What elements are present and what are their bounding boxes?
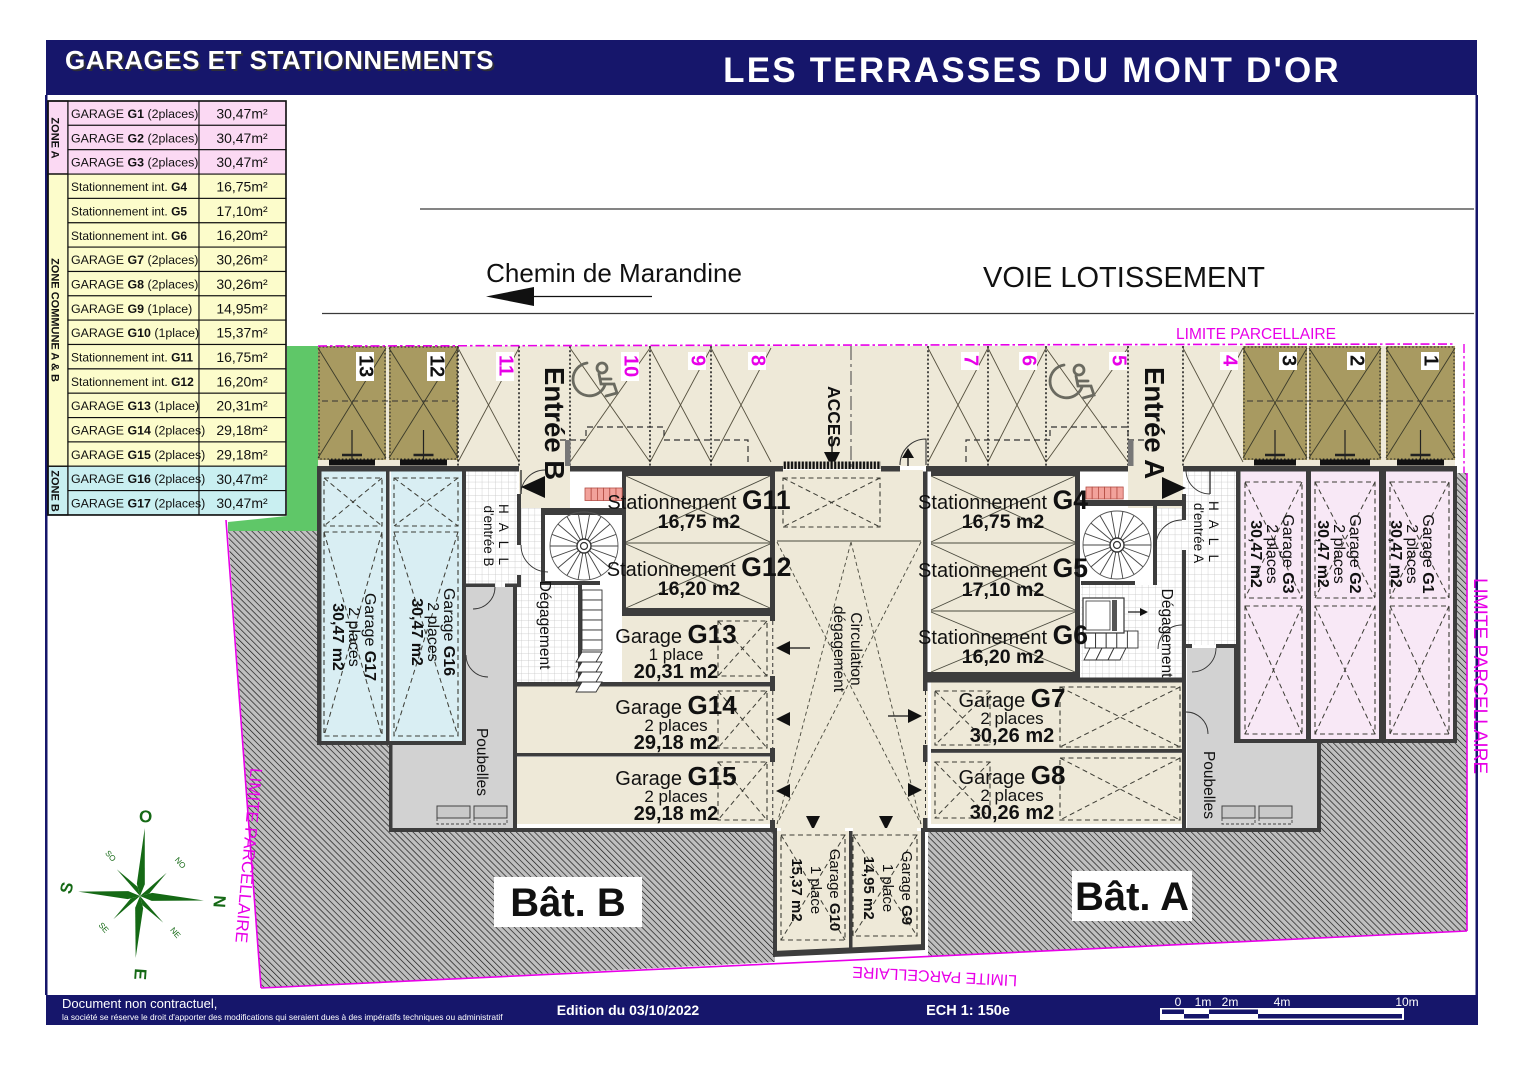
svg-text:Poubelles: Poubelles — [1200, 751, 1217, 819]
svg-text:ZONE A: ZONE A — [49, 117, 61, 158]
svg-text:0: 0 — [1175, 995, 1182, 1009]
svg-text:30,26m²: 30,26m² — [216, 276, 268, 292]
svg-text:GARAGE G10 (1place): GARAGE G10 (1place) — [71, 326, 199, 340]
svg-text:GARAGE G8 (2places): GARAGE G8 (2places) — [71, 278, 198, 292]
svg-text:20,31m²: 20,31m² — [216, 398, 268, 414]
svg-text:Stationnement int. G5: Stationnement int. G5 — [71, 204, 187, 218]
svg-text:13: 13 — [355, 355, 377, 377]
svg-text:30,47m²: 30,47m² — [216, 130, 268, 146]
svg-text:H A L Ld'entrée A: H A L Ld'entrée A — [1191, 501, 1221, 565]
svg-text:30,47m²: 30,47m² — [216, 495, 268, 511]
svg-text:Bât. A: Bât. A — [1075, 875, 1189, 919]
svg-text:10: 10 — [620, 355, 642, 377]
svg-text:GARAGE G2 (2places): GARAGE G2 (2places) — [71, 131, 198, 145]
svg-text:Garage G12 places30,47 m2: Garage G12 places30,47 m2 — [1387, 514, 1436, 593]
svg-text:LIMITE PARCELLAIRE: LIMITE PARCELLAIRE — [1469, 578, 1490, 774]
svg-text:Garage G22 places30,47 m2: Garage G22 places30,47 m2 — [1314, 514, 1363, 593]
svg-text:16,20m²: 16,20m² — [216, 373, 268, 389]
svg-text:Edition du 03/10/2022: Edition du 03/10/2022 — [557, 1002, 700, 1018]
svg-text:H A L Ld'entrée B: H A L Ld'entrée B — [481, 504, 511, 568]
svg-text:14,95m²: 14,95m² — [216, 300, 268, 316]
svg-text:GARAGE G3 (2places): GARAGE G3 (2places) — [71, 156, 198, 170]
svg-text:la société se réserve le droit: la société se réserve le droit d'apporte… — [62, 1012, 503, 1022]
svg-text:GARAGE G1 (2places): GARAGE G1 (2places) — [71, 107, 198, 121]
svg-text:17,10m²: 17,10m² — [216, 203, 268, 219]
svg-text:ZONE COMMUNE A & B: ZONE COMMUNE A & B — [49, 258, 61, 382]
svg-text:GARAGE G7 (2places): GARAGE G7 (2places) — [71, 253, 198, 267]
svg-text:Garage G32 places30,47 m2: Garage G32 places30,47 m2 — [1247, 514, 1296, 593]
svg-text:GARAGE G14 (2places): GARAGE G14 (2places) — [71, 424, 205, 438]
svg-text:Circulationdégagement: Circulationdégagement — [830, 606, 864, 693]
svg-text:29,18 m2: 29,18 m2 — [634, 732, 719, 754]
svg-text:GARAGE G17 (2places): GARAGE G17 (2places) — [71, 497, 205, 511]
svg-text:Stationnement int. G11: Stationnement int. G11 — [71, 351, 193, 365]
svg-text:29,18m²: 29,18m² — [216, 422, 268, 438]
svg-text:10m: 10m — [1395, 995, 1418, 1009]
svg-text:29,18 m2: 29,18 m2 — [634, 803, 719, 825]
svg-text:30,26 m2: 30,26 m2 — [970, 802, 1055, 824]
svg-text:30,26m²: 30,26m² — [216, 252, 268, 268]
svg-text:1m: 1m — [1195, 995, 1212, 1009]
svg-text:20,31 m2: 20,31 m2 — [634, 661, 719, 683]
svg-text:Chemin de Marandine: Chemin de Marandine — [486, 258, 742, 288]
svg-text:Dégagement: Dégagement — [536, 581, 553, 670]
svg-text:Stationnement int. G12: Stationnement int. G12 — [71, 375, 194, 389]
svg-text:Document non contractuel,: Document non contractuel, — [62, 996, 217, 1011]
svg-text:LIMITE PARCELLAIRE: LIMITE PARCELLAIRE — [1176, 326, 1336, 343]
svg-text:16,75m²: 16,75m² — [216, 349, 268, 365]
svg-text:ECH 1: 150e: ECH 1: 150e — [926, 1003, 1010, 1019]
svg-text:16,75 m2: 16,75 m2 — [658, 511, 741, 533]
svg-text:GARAGE G9 (1place): GARAGE G9 (1place) — [71, 302, 192, 316]
svg-text:LES TERRASSES DU MONT D'OR: LES TERRASSES DU MONT D'OR — [723, 51, 1341, 90]
svg-text:5: 5 — [1108, 355, 1130, 366]
svg-text:1: 1 — [1420, 355, 1442, 366]
svg-text:O: O — [138, 807, 153, 827]
svg-text:GARAGES ET STATIONNEMENTS: GARAGES ET STATIONNEMENTS — [65, 45, 494, 75]
svg-text:30,26 m2: 30,26 m2 — [970, 725, 1055, 747]
svg-text:4m: 4m — [1274, 995, 1291, 1009]
svg-text:Stationnement int. G6: Stationnement int. G6 — [71, 229, 187, 243]
svg-text:11: 11 — [495, 355, 517, 376]
svg-text:29,18m²: 29,18m² — [216, 446, 268, 462]
svg-text:ZONE B: ZONE B — [49, 470, 61, 512]
svg-text:2m: 2m — [1222, 995, 1239, 1009]
svg-text:VOIE LOTISSEMENT: VOIE LOTISSEMENT — [983, 262, 1265, 294]
svg-text:12: 12 — [426, 355, 448, 377]
svg-text:Bât. B: Bât. B — [510, 881, 626, 925]
svg-text:2: 2 — [1346, 355, 1368, 366]
svg-text:16,75m²: 16,75m² — [216, 179, 268, 195]
svg-text:17,10 m2: 17,10 m2 — [962, 579, 1045, 601]
svg-text:Stationnement int. G4: Stationnement int. G4 — [71, 180, 187, 194]
svg-text:E: E — [130, 968, 150, 981]
svg-text:9: 9 — [687, 355, 709, 366]
svg-text:8: 8 — [747, 355, 769, 366]
svg-text:Entrée B: Entrée B — [539, 367, 570, 480]
svg-text:GARAGE G15 (2places): GARAGE G15 (2places) — [71, 448, 205, 462]
svg-text:GARAGE G13 (1place): GARAGE G13 (1place) — [71, 399, 199, 413]
svg-text:30,47m²: 30,47m² — [216, 154, 268, 170]
svg-text:30,47m²: 30,47m² — [216, 471, 268, 487]
svg-text:N: N — [209, 895, 229, 909]
svg-text:4: 4 — [1219, 355, 1241, 367]
svg-text:16,20 m2: 16,20 m2 — [962, 646, 1045, 668]
svg-text:6: 6 — [1018, 355, 1040, 366]
svg-text:ACCES: ACCES — [824, 386, 844, 447]
svg-text:16,20m²: 16,20m² — [216, 227, 268, 243]
svg-text:Dégagement: Dégagement — [1158, 589, 1175, 678]
svg-text:16,20 m2: 16,20 m2 — [658, 578, 741, 600]
svg-text:Poubelles: Poubelles — [473, 728, 490, 796]
svg-text:15,37m²: 15,37m² — [216, 325, 268, 341]
svg-text:GARAGE G16 (2places): GARAGE G16 (2places) — [71, 472, 205, 486]
svg-text:3: 3 — [1278, 355, 1300, 366]
svg-text:16,75 m2: 16,75 m2 — [962, 511, 1045, 533]
svg-text:7: 7 — [960, 355, 982, 366]
svg-text:Entrée A: Entrée A — [1139, 367, 1170, 479]
svg-text:30,47m²: 30,47m² — [216, 106, 268, 122]
